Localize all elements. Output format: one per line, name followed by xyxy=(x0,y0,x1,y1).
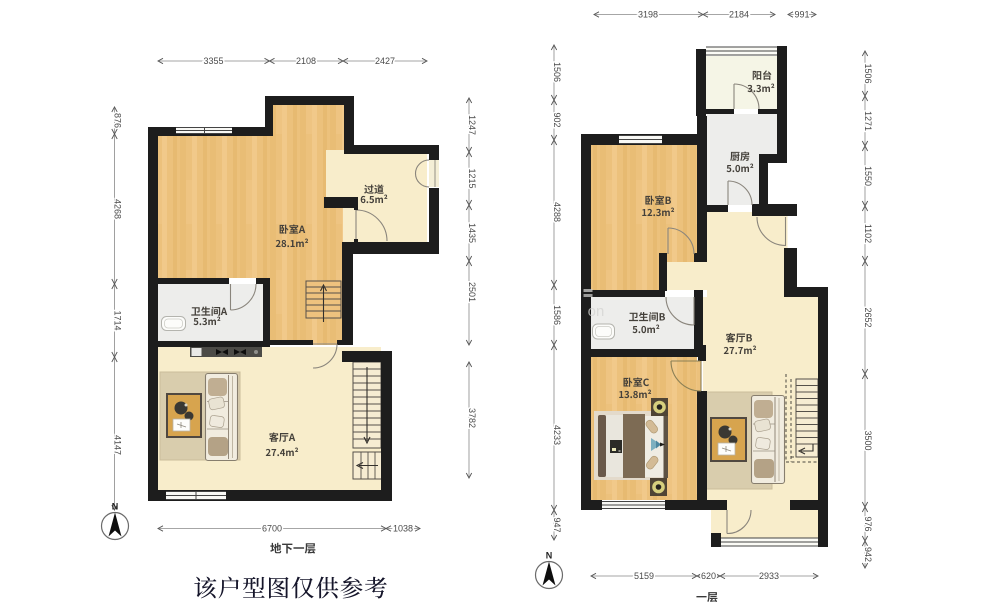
svg-text:620: 620 xyxy=(701,571,716,581)
svg-text:976: 976 xyxy=(863,516,873,531)
svg-text:2652: 2652 xyxy=(863,307,873,327)
svg-text:1586: 1586 xyxy=(552,305,562,325)
svg-text:1714: 1714 xyxy=(113,310,123,330)
svg-text:3500: 3500 xyxy=(863,430,873,450)
svg-text:1215: 1215 xyxy=(467,168,477,188)
svg-text:1550: 1550 xyxy=(863,166,873,186)
svg-text:1102: 1102 xyxy=(863,224,873,243)
svg-text:942: 942 xyxy=(863,547,873,562)
svg-text:4288: 4288 xyxy=(552,202,562,222)
svg-text:2108: 2108 xyxy=(296,56,316,66)
svg-text:1506: 1506 xyxy=(863,63,873,83)
svg-text:1271: 1271 xyxy=(863,111,873,131)
svg-text:2933: 2933 xyxy=(759,571,779,581)
svg-text:2184: 2184 xyxy=(729,10,749,20)
svg-text:1506: 1506 xyxy=(552,62,562,82)
svg-text:1247: 1247 xyxy=(467,115,477,135)
svg-text:902: 902 xyxy=(552,112,562,127)
svg-text:N: N xyxy=(546,551,553,561)
svg-text:5159: 5159 xyxy=(634,571,654,581)
svg-text:2427: 2427 xyxy=(375,56,395,66)
svg-text:6700: 6700 xyxy=(262,524,282,534)
svg-text:on: on xyxy=(588,303,605,320)
svg-text:3198: 3198 xyxy=(638,10,658,20)
svg-text:4268: 4268 xyxy=(113,199,123,219)
svg-text:1038: 1038 xyxy=(393,524,413,534)
svg-text:991: 991 xyxy=(794,10,809,20)
svg-text:N: N xyxy=(112,502,119,512)
svg-text:4147: 4147 xyxy=(113,435,123,455)
svg-text:3355: 3355 xyxy=(203,56,223,66)
svg-text:947: 947 xyxy=(552,517,562,532)
svg-text:3782: 3782 xyxy=(467,408,477,428)
svg-text:876: 876 xyxy=(113,113,123,128)
svg-text:1435: 1435 xyxy=(467,223,477,243)
svg-text:2501: 2501 xyxy=(467,282,477,302)
svg-text:4233: 4233 xyxy=(552,425,562,445)
